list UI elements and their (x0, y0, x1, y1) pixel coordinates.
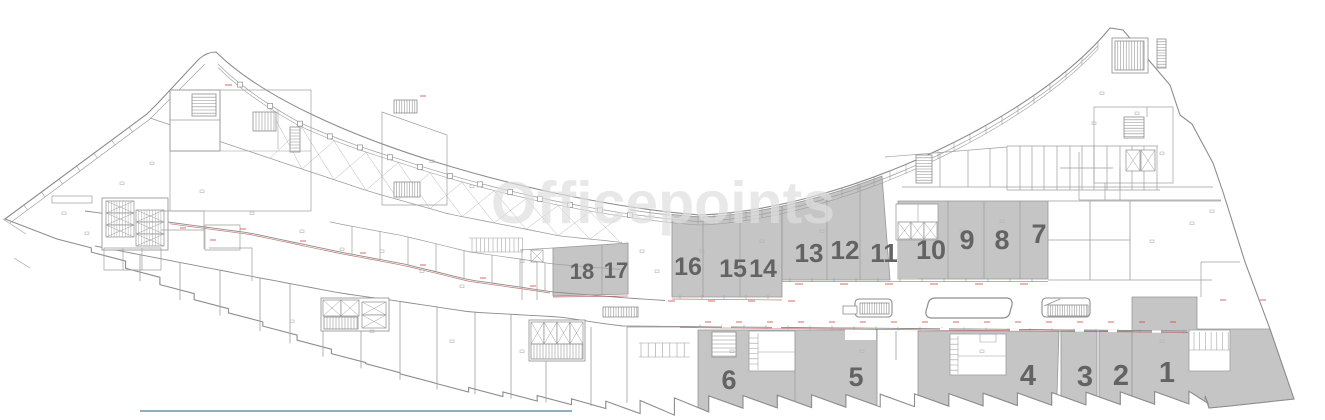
svg-text:9: 9 (959, 225, 974, 255)
svg-text:8: 8 (994, 225, 1009, 255)
svg-text:5: 5 (848, 362, 863, 392)
svg-text:18: 18 (570, 259, 594, 284)
svg-text:12: 12 (831, 235, 860, 265)
svg-text:13: 13 (795, 238, 824, 268)
svg-text:10: 10 (916, 235, 946, 265)
svg-text:15: 15 (719, 255, 747, 283)
svg-text:1: 1 (1159, 357, 1175, 389)
svg-text:7: 7 (1031, 219, 1046, 249)
svg-text:Officepoints: Officepoints (491, 170, 835, 236)
svg-text:14: 14 (749, 255, 777, 283)
svg-text:4: 4 (1020, 360, 1036, 392)
svg-text:3: 3 (1077, 361, 1093, 393)
svg-text:11: 11 (870, 238, 898, 268)
svg-text:16: 16 (674, 253, 702, 281)
svg-text:17: 17 (604, 258, 628, 283)
svg-text:6: 6 (721, 365, 736, 395)
svg-text:2: 2 (1113, 360, 1129, 392)
